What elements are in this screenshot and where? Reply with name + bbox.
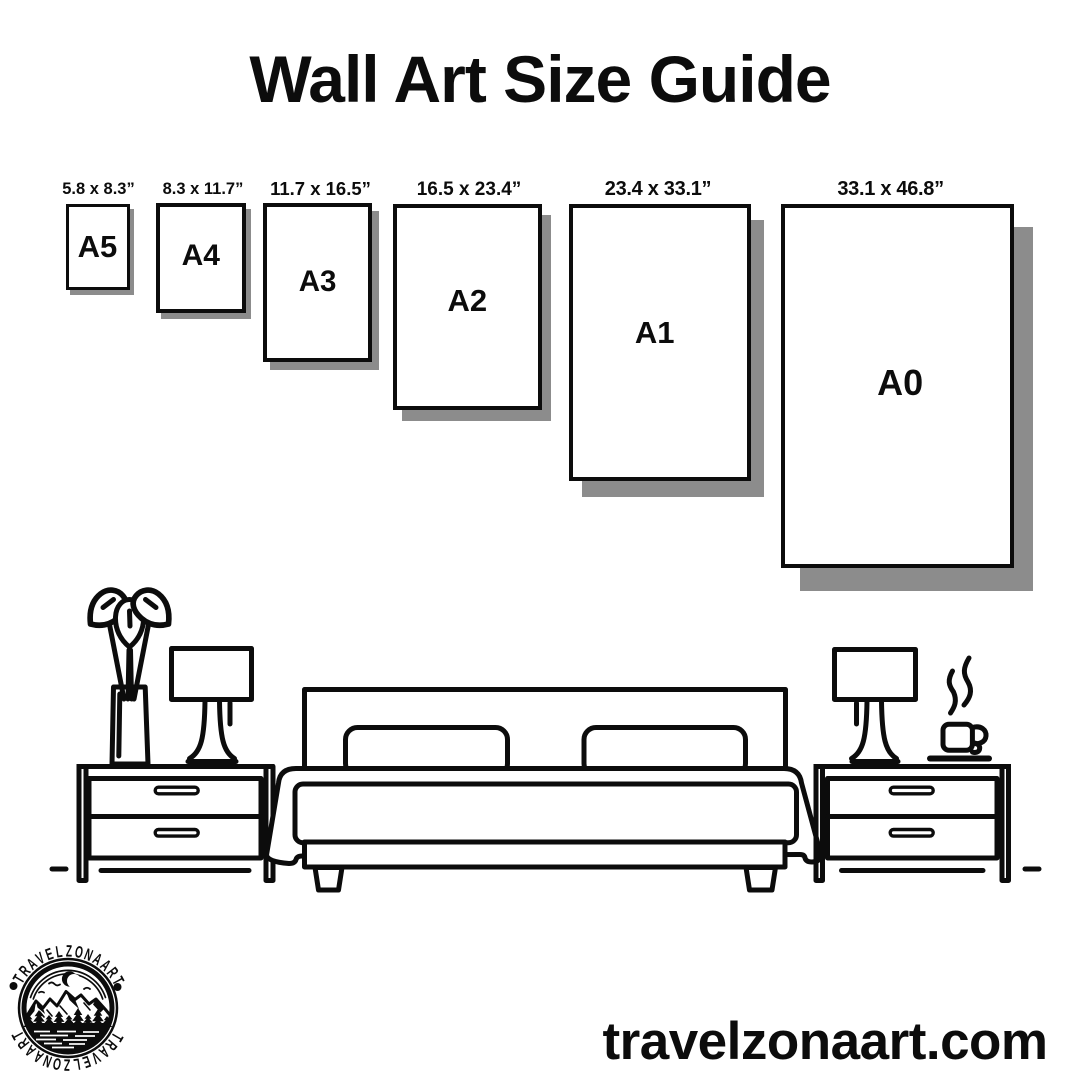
svg-text:L: L — [54, 942, 63, 961]
svg-text:Z: Z — [66, 942, 73, 960]
svg-text:Z: Z — [64, 1056, 71, 1074]
svg-text:L: L — [72, 1055, 81, 1074]
